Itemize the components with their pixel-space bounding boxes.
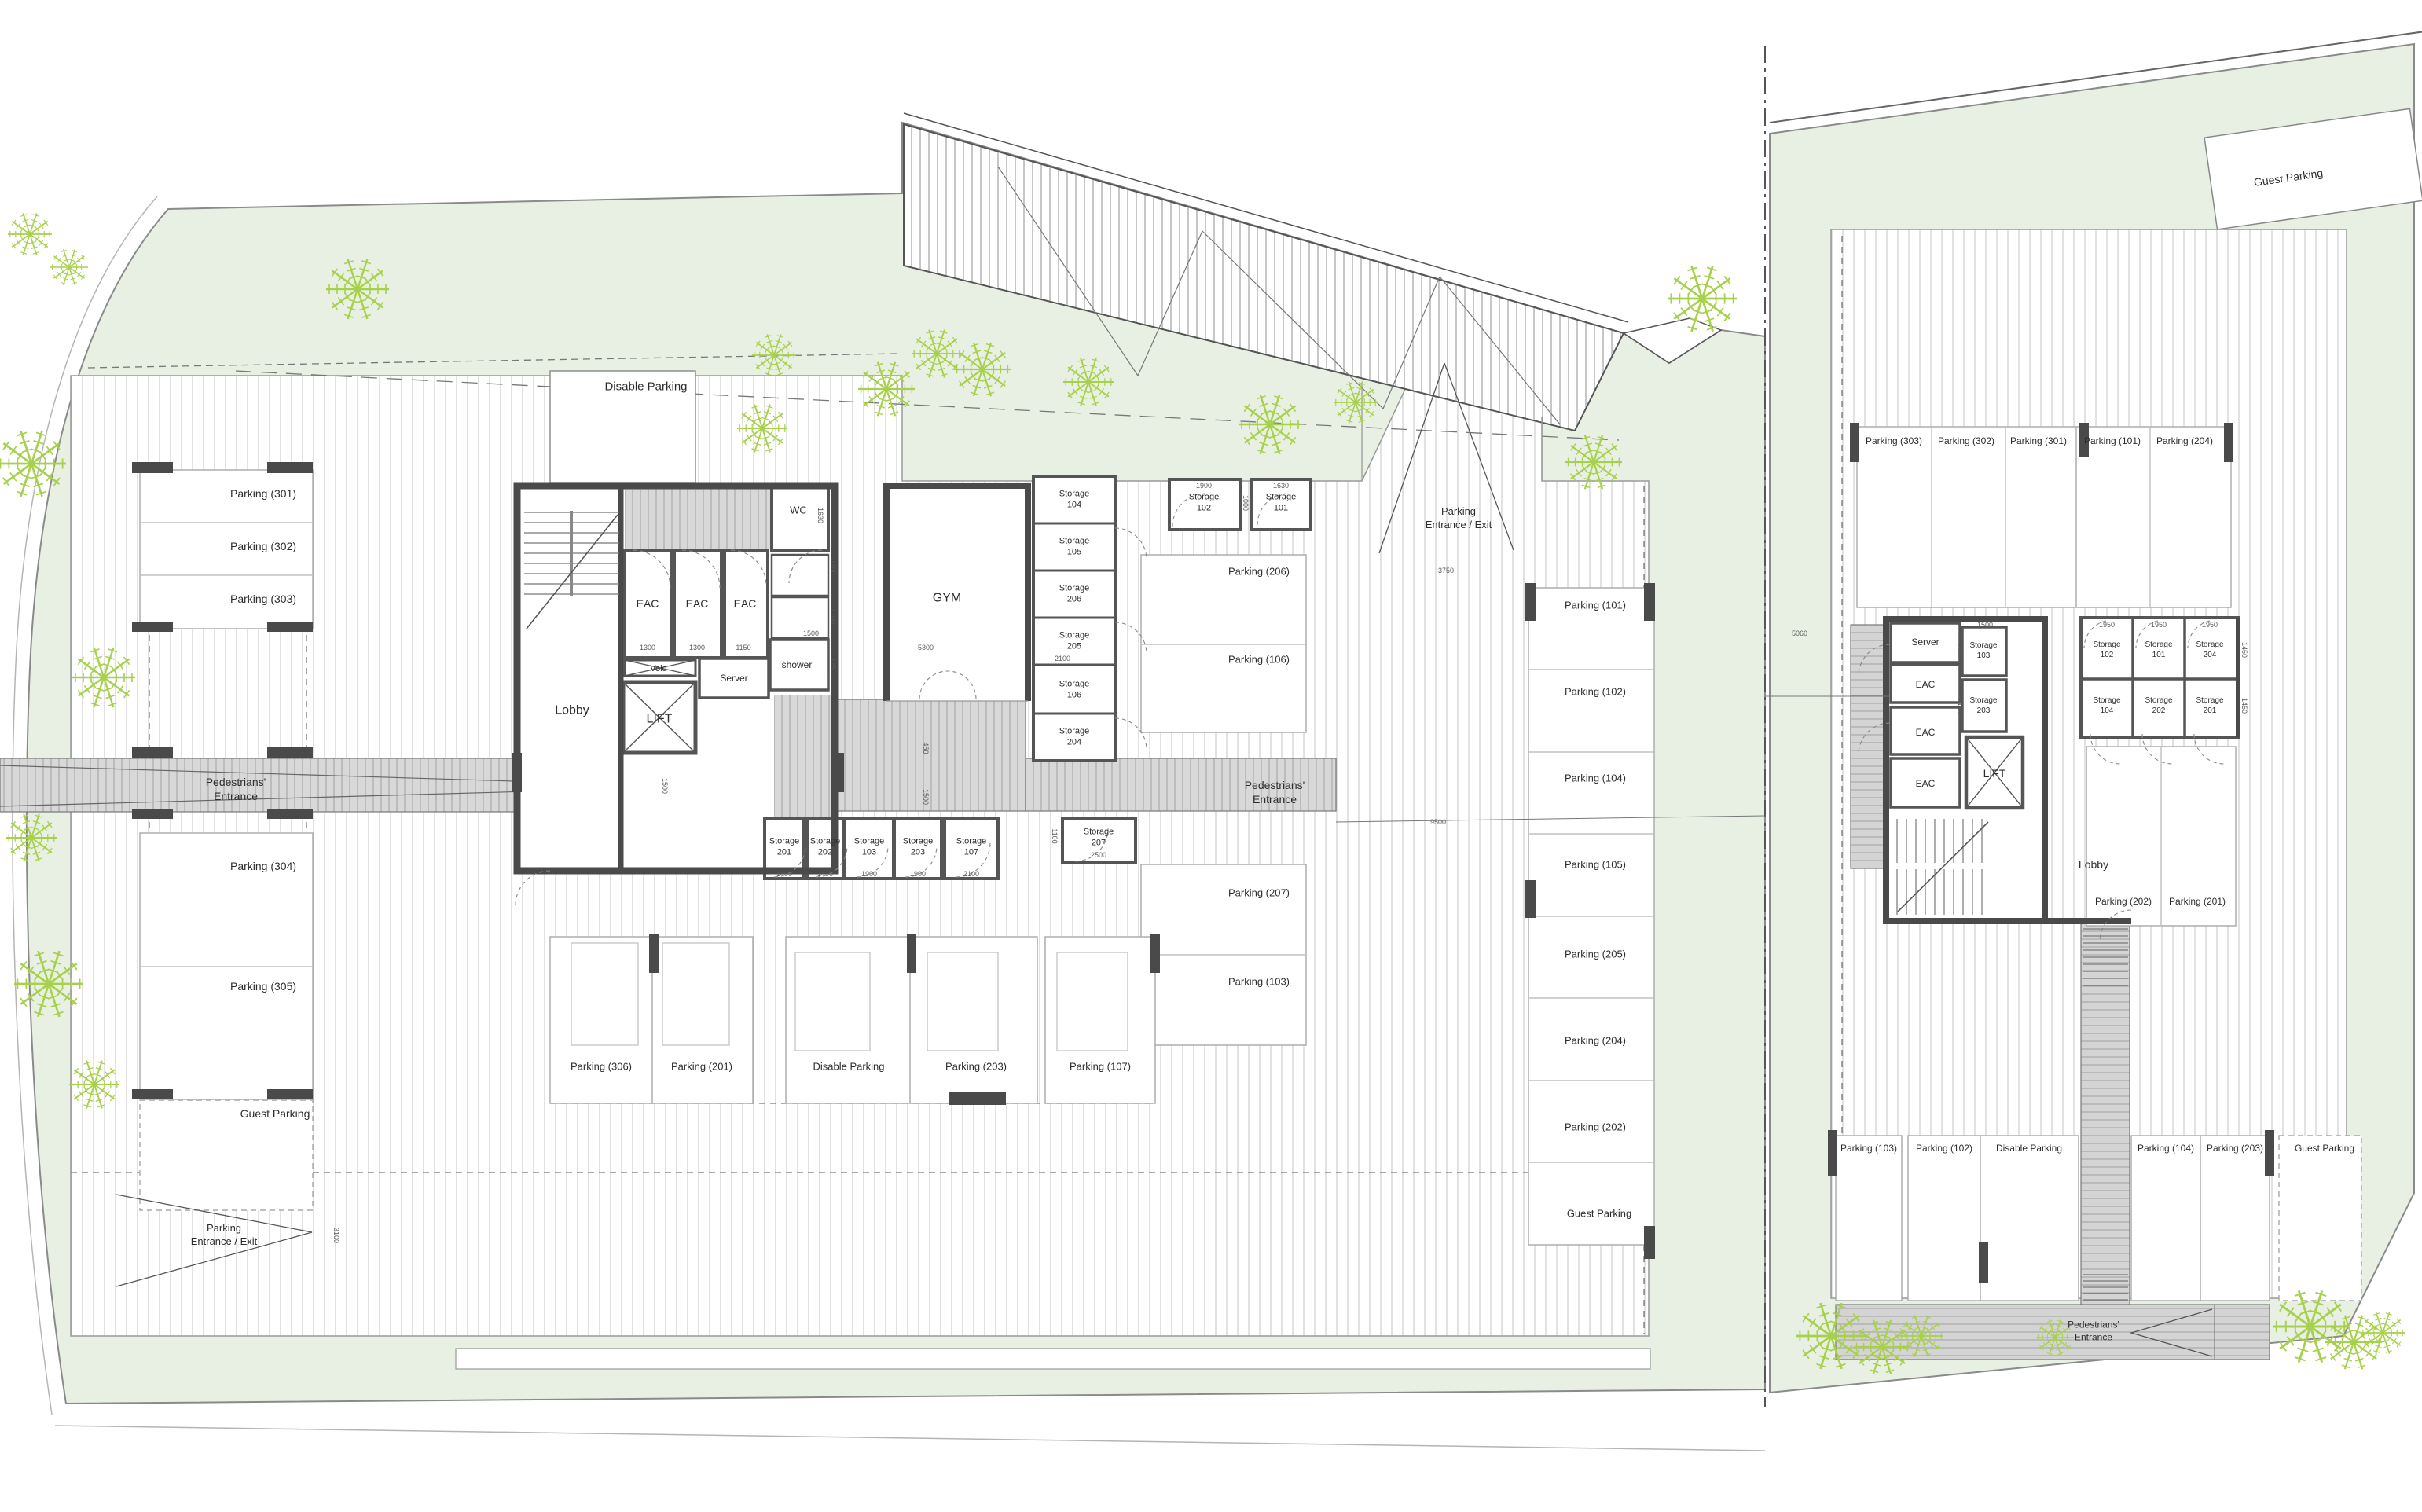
- floor-plan-canvas: Disable ParkingParking (301)Parking (302…: [0, 0, 2422, 1512]
- plan-drawing: [0, 0, 2422, 1512]
